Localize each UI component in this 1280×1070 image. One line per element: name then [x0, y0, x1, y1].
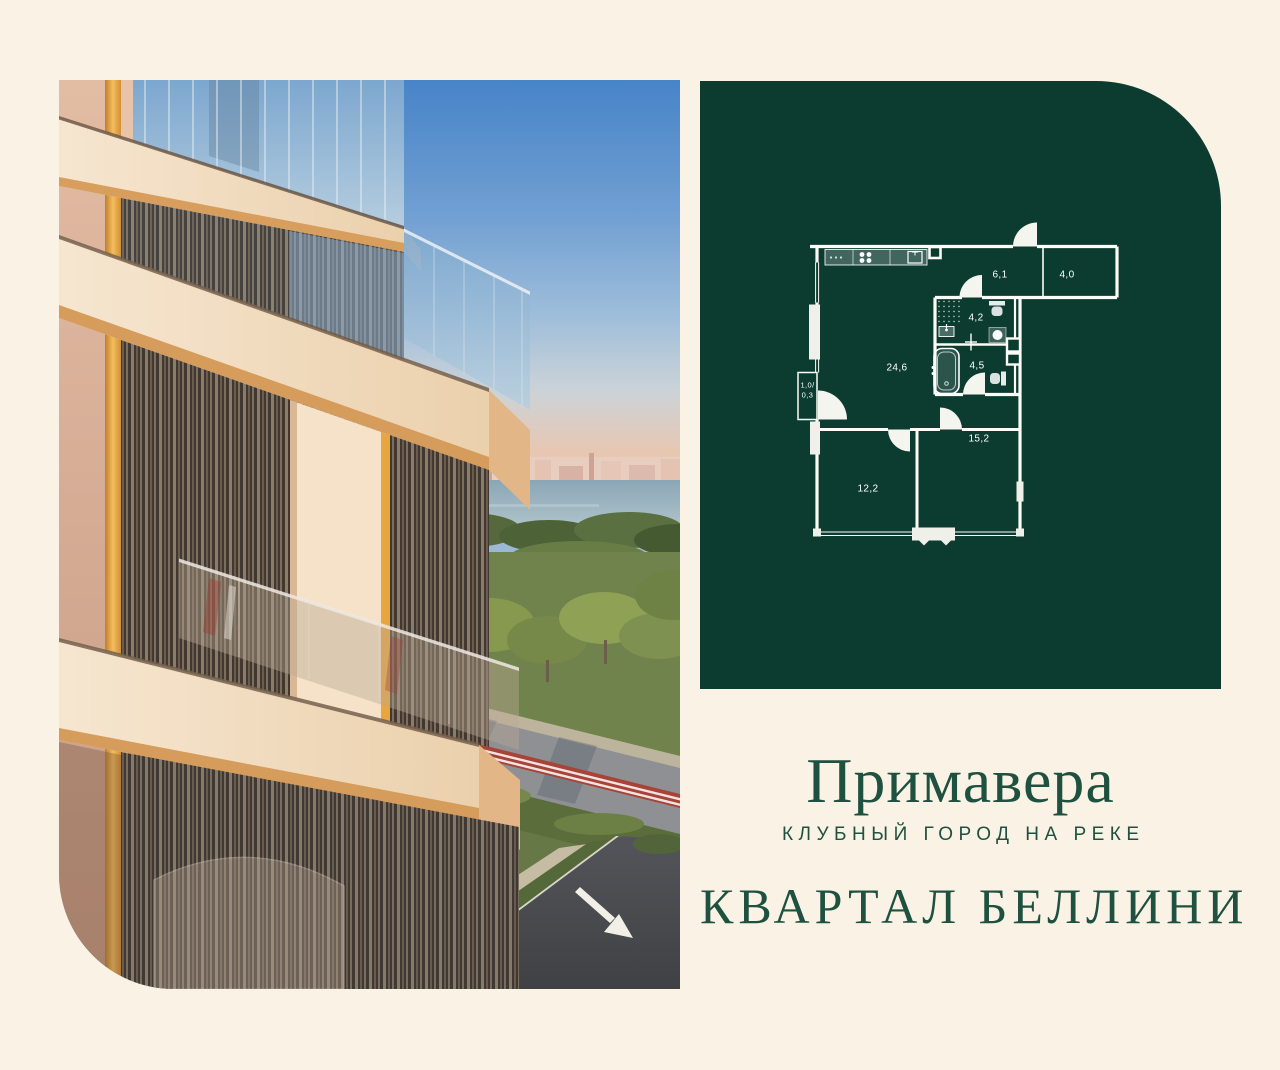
room-area-label-hallway: 6,1 [992, 270, 1007, 281]
room-area-label-balcony-2: 0,3 [802, 391, 814, 400]
toilet-icon-lower [990, 372, 1006, 386]
room-area-label-bathroom-lower: 4,5 [969, 361, 984, 372]
floorplan-panel: 24,6 6,1 4,0 4,2 4,5 15,2 12,2 1,0/ 0,3 [700, 81, 1221, 689]
room-area-label-balcony-1: 1,0/ [800, 381, 815, 390]
building-exterior-photo [59, 80, 680, 989]
corner-column [813, 529, 821, 537]
bottom-balcony-door [912, 528, 955, 546]
side-window [1017, 482, 1024, 502]
radiator [810, 422, 820, 455]
balcony-door-arc [818, 391, 847, 420]
project-tagline: КЛУБНЫЙ ГОРОД НА РЕКЕ [700, 824, 1221, 846]
kitchen-counter [825, 250, 927, 266]
utility-shaft [1007, 339, 1020, 365]
corner-column [1016, 529, 1024, 537]
room-area-label-bedroom-left: 12,2 [857, 484, 878, 495]
quarter-title: КВАРТАЛ БЕЛЛИНИ [700, 877, 1221, 935]
project-name-title: Примавера [700, 748, 1221, 813]
bathtub-icon [932, 349, 960, 394]
shower-area-icon [938, 301, 959, 322]
toilet-icon-upper [989, 301, 1005, 316]
photo-scene [59, 80, 680, 989]
room-area-label-kitchen-living: 24,6 [886, 363, 907, 374]
room-area-label-storage: 4,0 [1059, 270, 1074, 281]
washing-machine-icon [989, 328, 1006, 343]
room-area-label-bedroom-right: 15,2 [968, 434, 989, 445]
promo-page: 24,6 6,1 4,0 4,2 4,5 15,2 12,2 1,0/ 0,3 … [0, 0, 1280, 1070]
towel-rail-icon [965, 334, 977, 351]
entrance-door-arc [1013, 223, 1037, 247]
washbasin-icon [939, 324, 954, 337]
room-area-label-bathroom-upper: 4,2 [968, 313, 983, 324]
curved-glass-balcony [154, 857, 344, 989]
bedroom-right-door-arc [940, 408, 962, 430]
branding-block: Примавера КЛУБНЫЙ ГОРОД НА РЕКЕ КВАРТАЛ … [700, 748, 1221, 935]
apartment-floorplan: 24,6 6,1 4,0 4,2 4,5 15,2 12,2 1,0/ 0,3 [795, 211, 1130, 556]
wall-pier [809, 305, 820, 360]
bathroom-lower-door-arc [963, 373, 985, 395]
bedroom-left-door-arc [888, 430, 910, 452]
duct-shaft [930, 247, 941, 258]
bathroom-upper-door-arc [960, 275, 983, 298]
